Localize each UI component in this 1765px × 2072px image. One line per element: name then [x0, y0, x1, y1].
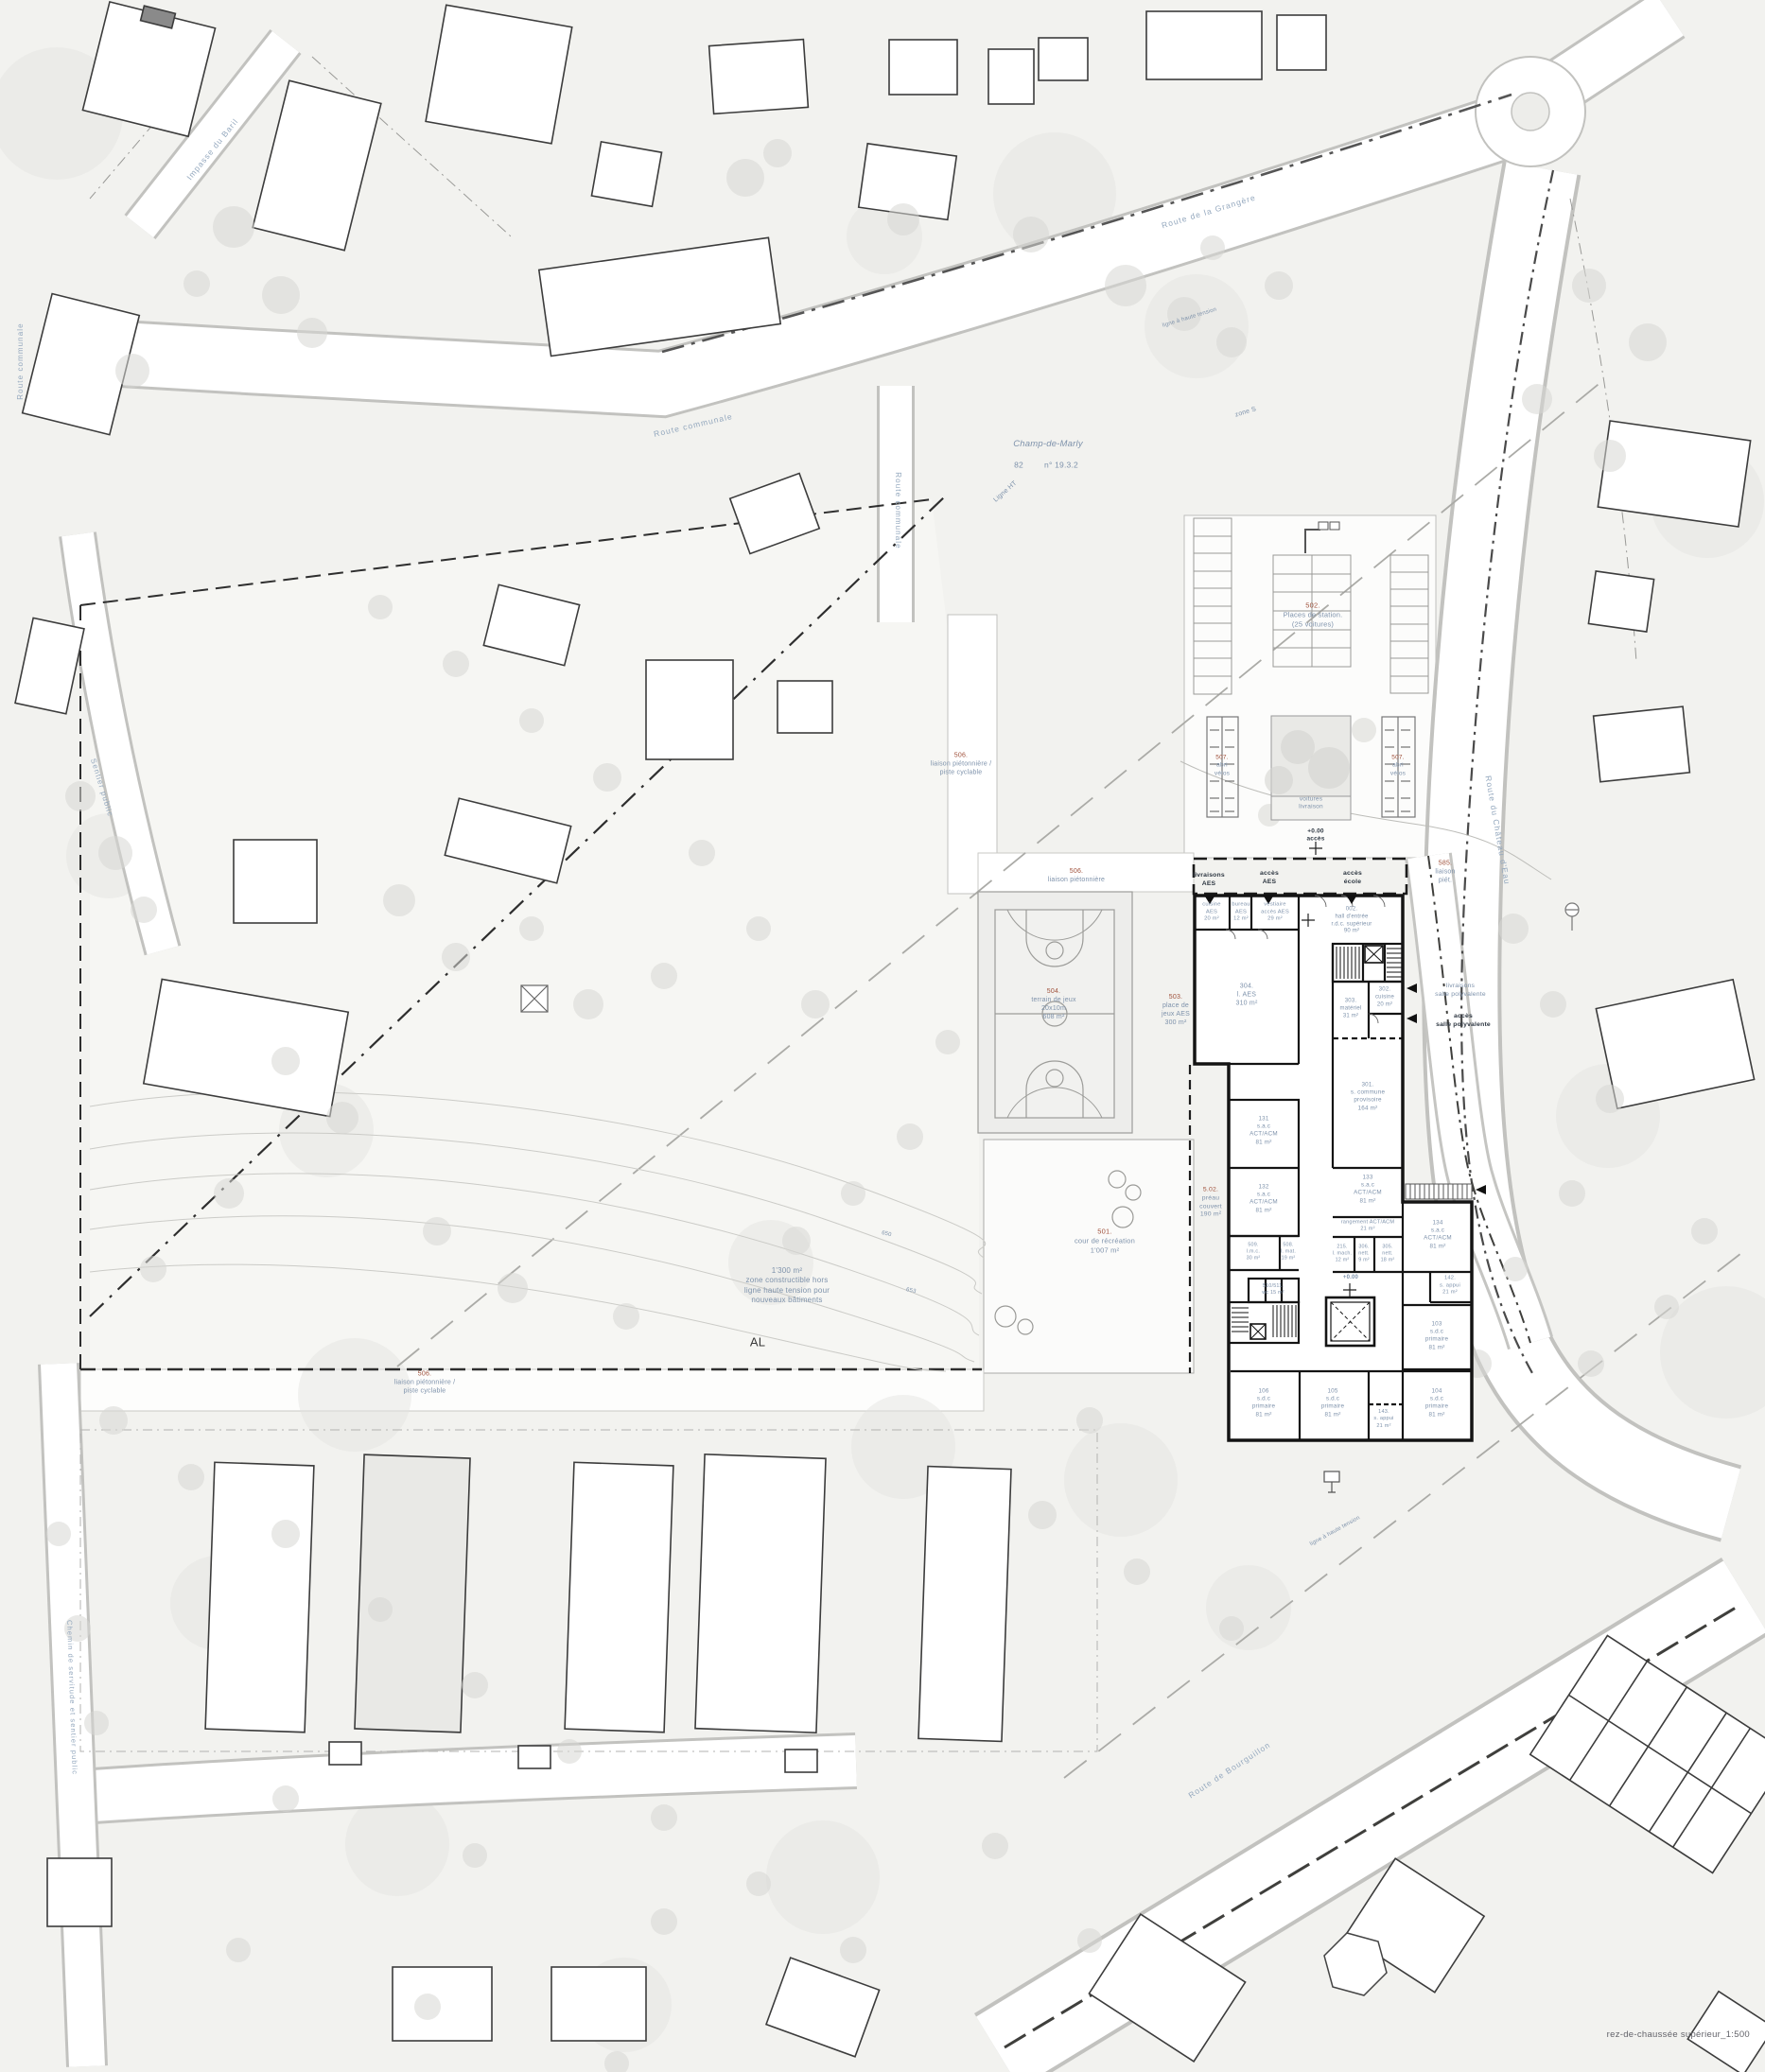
- room-label: cuisine AES 20 m²: [1202, 902, 1220, 924]
- room-label: 143. s. appui 21 m²: [1373, 1409, 1393, 1430]
- annotation-label: zone S: [1234, 405, 1258, 419]
- street-label: Route de Bourguillon: [1186, 1740, 1272, 1801]
- room-label: 215. l. mach. 12 m²: [1333, 1244, 1352, 1263]
- annotation-label: 650: [881, 1230, 892, 1240]
- site-label: 585.liaison piét.: [1435, 859, 1455, 884]
- room-label: 303. matériel 31 m²: [1340, 998, 1362, 1019]
- street-label: Sentier public: [88, 757, 115, 818]
- room-label: 002. hall d'entrée r.d.c. supérieur 90 m…: [1332, 906, 1372, 935]
- annotation-label: 82: [1014, 460, 1023, 470]
- site-label: accès école: [1343, 870, 1362, 887]
- room-label: 508. l. mat. 19 m²: [1281, 1242, 1296, 1262]
- street-label: Route du Château d'Eau: [1482, 775, 1512, 885]
- site-label: 501.cour de récréation 1'007 m²: [1075, 1227, 1135, 1254]
- room-label: 302. cuisine 20 m²: [1375, 986, 1394, 1008]
- site-label: accès salle polyvalente: [1436, 1013, 1491, 1030]
- site-plan: Impasse du BarilRoute communaleRoute com…: [0, 0, 1765, 2072]
- site-label: 507.abri vélos: [1390, 754, 1406, 777]
- room-label: 132 s.a.c ACT/ACM 81 m²: [1249, 1184, 1278, 1215]
- room-label: 306. nett. 9 m²: [1358, 1244, 1370, 1263]
- site-label: accès AES: [1260, 870, 1279, 887]
- street-label: Chemin de servitude et sentier public: [64, 1620, 79, 1775]
- annotation-label: ligne à haute tension: [1162, 307, 1217, 331]
- drawing-title: rez-de-chaussée supérieur_1:500: [1428, 2029, 1750, 2040]
- room-label: 104 s.d.c primaire 81 m²: [1425, 1388, 1448, 1419]
- room-label: 142. s. appui 21 m²: [1440, 1276, 1460, 1297]
- room-label: 106 s.d.c primaire 81 m²: [1252, 1388, 1275, 1419]
- room-label: 304. l. AES 310 m²: [1236, 982, 1258, 1007]
- annotation-label: 653: [905, 1287, 917, 1297]
- site-label: 507.abri vélos: [1215, 754, 1230, 777]
- site-label: 506.liaison piétonnière / piste cyclable: [931, 751, 992, 776]
- street-label: Route communale: [653, 411, 734, 440]
- site-label: 506.liaison piétonnière / piste cyclable: [394, 1369, 456, 1395]
- annotation-label: ligne à haute tension: [1309, 1515, 1362, 1549]
- room-label: 134 s.a.c ACT/ACM 81 m²: [1424, 1220, 1452, 1251]
- room-label: 510/511. wc 15 m²: [1262, 1283, 1284, 1297]
- annotation-label: AL: [750, 1335, 765, 1351]
- annotation-label: Ligne HT: [992, 479, 1020, 505]
- annotation-label: n° 19.3.2: [1044, 460, 1078, 470]
- site-label: 503.place de jeux AES 300 m²: [1162, 993, 1190, 1027]
- room-label: 133 s.a.c ACT/ACM 81 m²: [1354, 1175, 1382, 1206]
- street-label: Route de la Grangère: [1161, 193, 1257, 232]
- room-label: 131 s.a.c ACT/ACM 81 m²: [1249, 1116, 1278, 1147]
- site-label: livraisons salle polyvalente: [1435, 983, 1486, 1000]
- room-label: bureau AES 12 m²: [1232, 902, 1249, 924]
- label-layer: Impasse du BarilRoute communaleRoute com…: [0, 0, 1765, 2072]
- room-label: 103 s.d.c primaire 81 m²: [1425, 1321, 1448, 1352]
- site-label: +0.00 accès: [1306, 828, 1324, 844]
- site-label: 506.liaison piétonnière: [1048, 867, 1105, 884]
- room-label: 305. nett. 18 m²: [1381, 1244, 1395, 1263]
- site-label: voitures livraison: [1299, 796, 1323, 812]
- street-label: Impasse du Baril: [184, 116, 241, 183]
- site-label: 5.02.préau couvert 190 m²: [1199, 1186, 1222, 1219]
- room-label: 509. l.m.c. 30 m²: [1247, 1242, 1261, 1262]
- site-label: 504.terrain de jeux 20x10m 608 m²: [1031, 987, 1075, 1021]
- room-label: 105 s.d.c primaire 81 m²: [1321, 1388, 1344, 1419]
- annotation-label: 1'300 m² zone constructible hors ligne h…: [744, 1266, 830, 1306]
- annotation-label: Champ-de-Marly: [1013, 439, 1083, 450]
- street-label: Route communale: [893, 472, 902, 548]
- site-label: livraisons AES: [1193, 872, 1225, 889]
- room-label: rangement ACT/ACM 21 m²: [1341, 1220, 1395, 1234]
- site-label: 502.Places de station. (25 voitures): [1284, 601, 1343, 628]
- room-label: vestiaire accès AES 29 m²: [1261, 902, 1289, 924]
- room-label: +0.00: [1343, 1275, 1358, 1282]
- street-label: Route communale: [16, 322, 26, 399]
- room-label: 301. s. commune provisoire 164 m²: [1351, 1082, 1385, 1113]
